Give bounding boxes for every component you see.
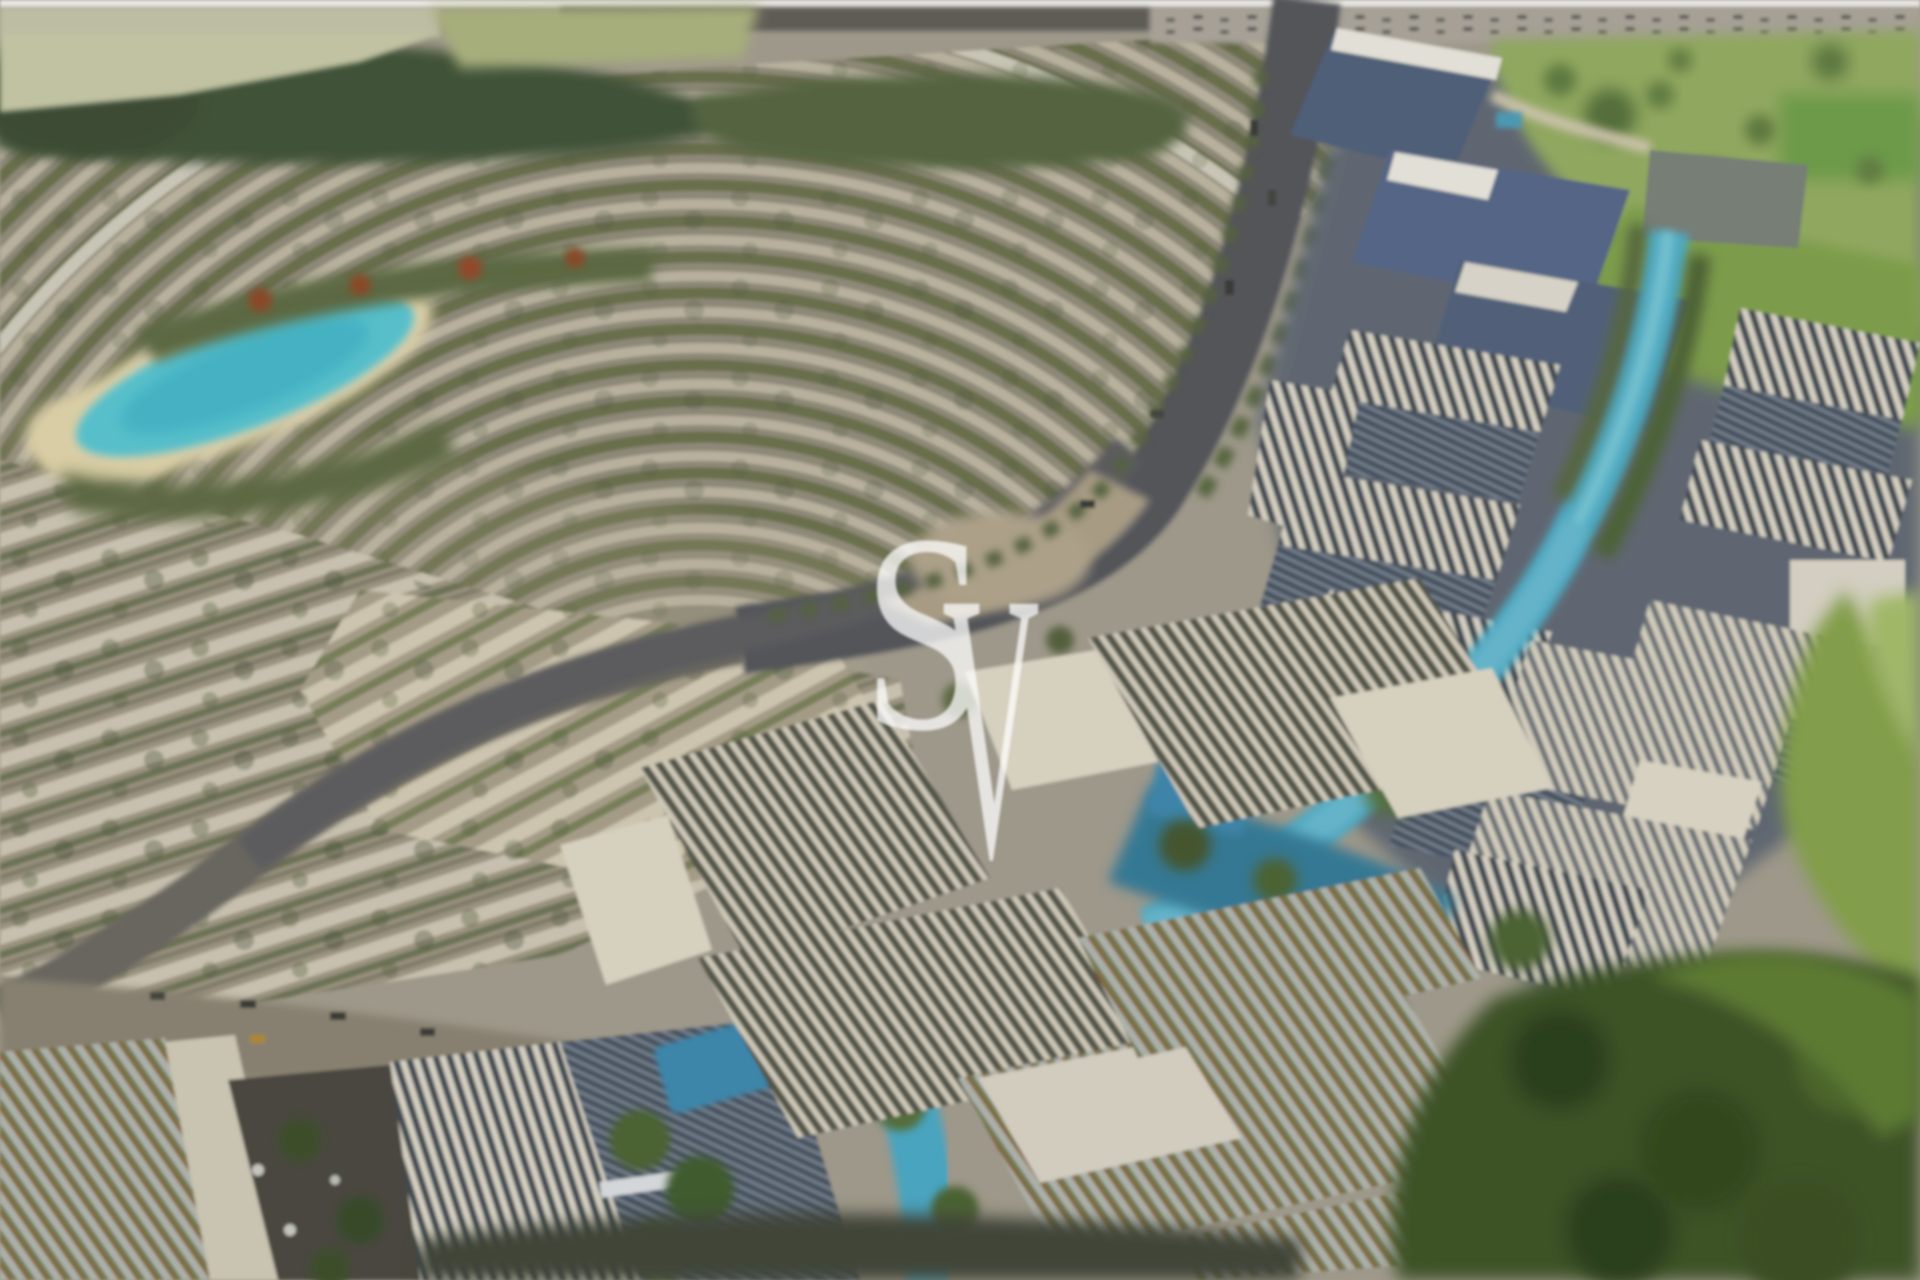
svg-text:V: V [942, 515, 1040, 939]
